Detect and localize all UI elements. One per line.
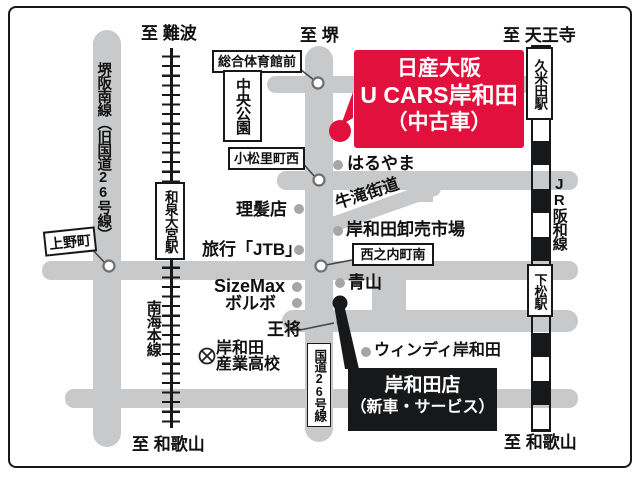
poi-dot-sizemax <box>292 282 302 292</box>
poi-dot-volvo <box>292 298 302 308</box>
ucars-line1: 日産大阪 <box>354 56 524 81</box>
poi-label-school-line2: 産業高校 <box>216 357 280 374</box>
road-name-sakai-hannan: 堺阪南線（旧国道26号線） <box>95 62 110 252</box>
direction-namba: 至 難波 <box>141 25 197 43</box>
direction-wakayama-southeast: 至 和歌山 <box>504 434 577 452</box>
intersection-box-nishinouchi: 西之内町南 <box>352 243 434 266</box>
school-icon <box>200 349 215 364</box>
rail-name-jr-hanwa: JR阪和線 <box>551 176 567 271</box>
direction-tennoji: 至 天王寺 <box>503 27 576 45</box>
intersection-circle-ueno <box>104 261 115 272</box>
poi-dot-aoyama <box>335 278 345 288</box>
kishiwada-line1: 岸和田店 <box>348 374 497 397</box>
intersection-circle-komatsuri <box>314 175 325 186</box>
direction-wakayama-southwest: 至 和歌山 <box>132 436 205 454</box>
ucars-location-dot <box>329 120 351 142</box>
poi-dot-haruyama <box>333 160 343 170</box>
rail-name-nankai: 南海本線 <box>145 300 161 380</box>
intersection-circle-sogo-taiikukan <box>313 78 324 89</box>
ucars-line2: U CARS岸和田 <box>354 81 524 110</box>
poi-label-jtb: 旅行「JTB」 <box>202 241 302 259</box>
poi-label-aoyama: 青山 <box>348 274 382 292</box>
kishiwada-callout-box: 岸和田店 （新車・サービス） <box>348 368 497 431</box>
poi-label-ichiba: 岸和田卸売市場 <box>346 221 465 239</box>
poi-label-ohsho: 王将 <box>267 321 301 339</box>
poi-dot-ichiba <box>333 226 343 236</box>
poi-label-windy: ウィンディ岸和田 <box>374 343 501 360</box>
poi-label-volvo: ボルボ <box>225 295 276 313</box>
intersection-circle-nishinouchi <box>316 261 327 272</box>
ucars-line3: （中古車） <box>354 110 524 136</box>
access-map: 至 難波 至 堺 至 天王寺 至 和歌山 至 和歌山 堺阪南線（旧国道26号線）… <box>0 0 640 480</box>
kishiwada-location-dot <box>333 296 348 311</box>
ucars-callout-box: 日産大阪 U CARS岸和田 （中古車） <box>354 50 524 148</box>
kishiwada-pointer-tail <box>334 300 359 369</box>
kishiwada-line2: （新車・サービス） <box>348 397 497 419</box>
pointer-line-nishinouchi <box>326 260 352 265</box>
pointer-line-ohsho <box>300 323 334 330</box>
station-box-shimomatsu: 下松駅 <box>527 264 553 317</box>
poi-label-haruyama: はるやま <box>347 155 415 173</box>
station-box-izumi-omiya: 和泉大宮駅 <box>155 182 185 260</box>
place-box-chuo-koen: 中央公園 <box>223 70 262 142</box>
ucars-pointer-tail <box>341 92 353 125</box>
poi-dot-windy <box>361 347 371 357</box>
station-box-kumeda: 久米田駅 <box>526 47 553 120</box>
poi-dot-rihatsuten <box>294 204 304 214</box>
poi-label-rihatsuten: 理髪店 <box>236 201 287 219</box>
intersection-box-komatsuri: 小松里町西 <box>228 147 305 170</box>
road-box-route26: 国道26号線 <box>307 343 331 427</box>
direction-sakai: 至 堺 <box>300 27 339 45</box>
